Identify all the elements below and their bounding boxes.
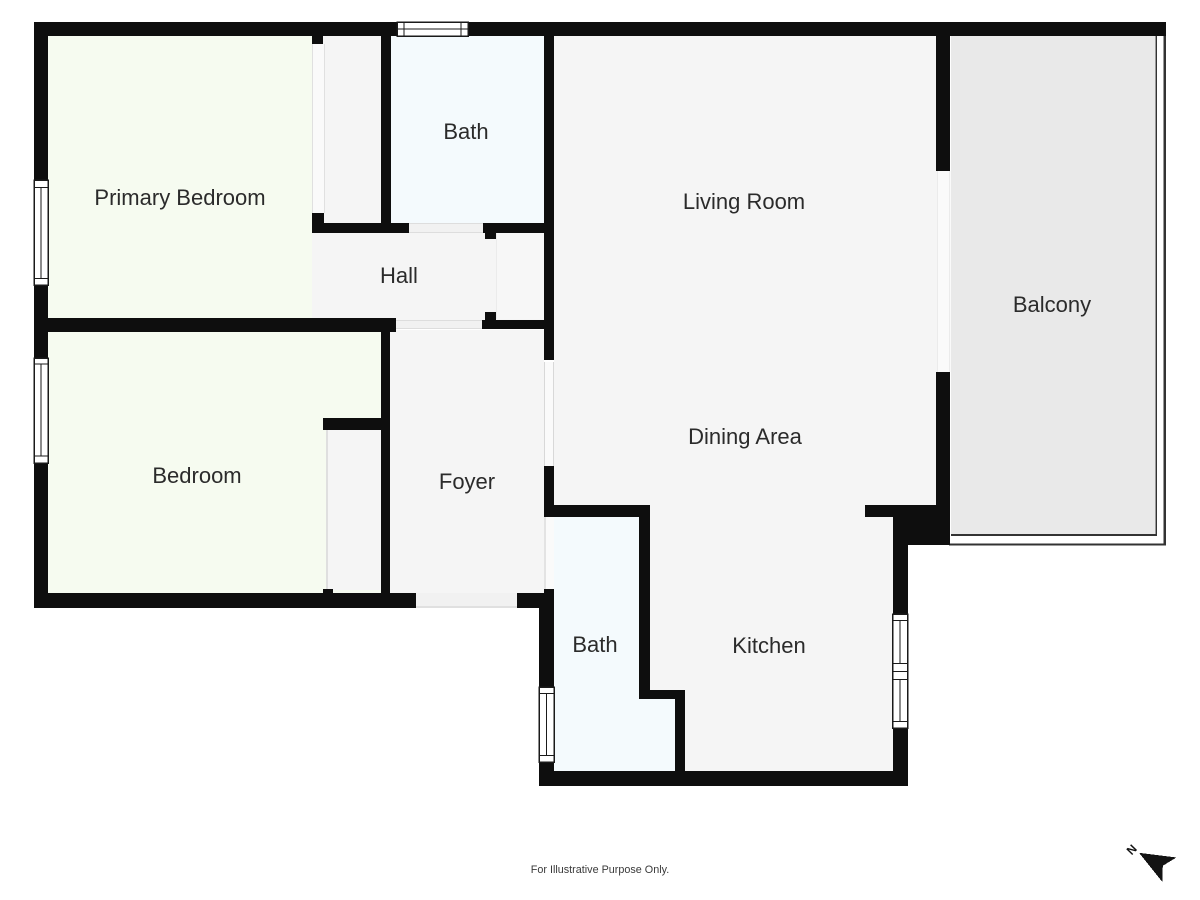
svg-text:Balcony: Balcony (1013, 292, 1091, 317)
svg-text:Bedroom: Bedroom (152, 463, 241, 488)
svg-text:Foyer: Foyer (439, 469, 495, 494)
svg-text:Bath: Bath (572, 632, 617, 657)
svg-text:Bath: Bath (443, 119, 488, 144)
svg-text:Living Room: Living Room (683, 189, 805, 214)
svg-text:Hall: Hall (380, 263, 418, 288)
svg-text:Kitchen: Kitchen (732, 633, 805, 658)
svg-text:Primary Bedroom: Primary Bedroom (94, 185, 265, 210)
svg-text:Dining Area: Dining Area (688, 424, 803, 449)
svg-text:For Illustrative Purpose Only.: For Illustrative Purpose Only. (531, 864, 669, 876)
